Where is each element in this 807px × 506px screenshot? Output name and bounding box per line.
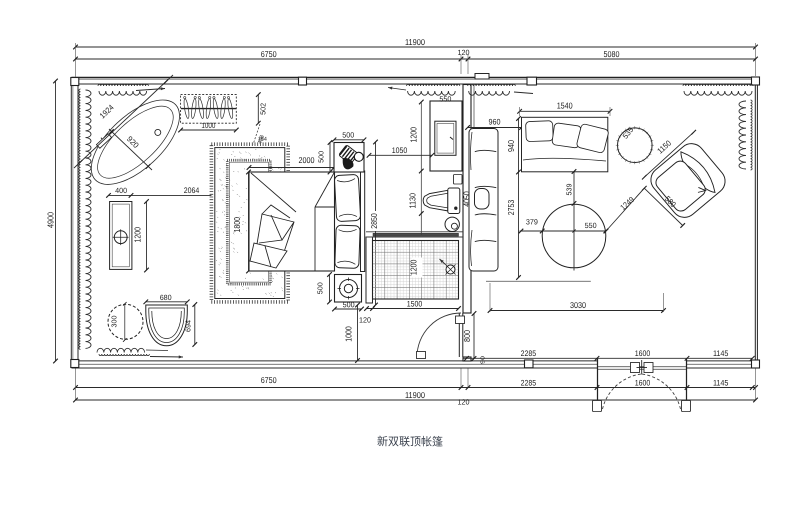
svg-text:90: 90 — [480, 356, 486, 364]
svg-text:1500: 1500 — [407, 299, 423, 308]
svg-text:1200: 1200 — [410, 126, 419, 142]
svg-text:1200: 1200 — [133, 226, 142, 242]
svg-text:1145: 1145 — [713, 349, 729, 358]
svg-text:11900: 11900 — [405, 37, 425, 47]
svg-text:1540: 1540 — [557, 100, 573, 110]
svg-text:379: 379 — [526, 217, 538, 226]
svg-text:300: 300 — [109, 316, 118, 328]
svg-text:6750: 6750 — [261, 375, 277, 385]
svg-text:550: 550 — [585, 221, 597, 230]
svg-text:1145: 1145 — [713, 378, 729, 387]
svg-text:11900: 11900 — [405, 390, 425, 400]
svg-text:694: 694 — [184, 320, 193, 332]
svg-text:1600: 1600 — [635, 378, 651, 387]
svg-text:680: 680 — [160, 293, 172, 302]
svg-text:2285: 2285 — [521, 378, 537, 387]
svg-text:502: 502 — [259, 103, 268, 115]
svg-text:400: 400 — [115, 186, 127, 195]
svg-text:1000: 1000 — [201, 121, 215, 130]
svg-text:500: 500 — [317, 151, 326, 163]
svg-text:4900: 4900 — [46, 212, 56, 228]
svg-text:940: 940 — [507, 140, 516, 152]
svg-text:1000: 1000 — [345, 326, 354, 342]
svg-text:新双联顶帐篷: 新双联顶帐篷 — [377, 434, 444, 448]
svg-text:3030: 3030 — [570, 300, 586, 310]
svg-text:800: 800 — [463, 330, 472, 342]
svg-text:1600: 1600 — [635, 349, 651, 358]
svg-text:500: 500 — [316, 282, 325, 294]
svg-text:2000: 2000 — [298, 155, 314, 165]
svg-text:164: 164 — [258, 137, 267, 143]
svg-text:2753: 2753 — [507, 199, 516, 215]
svg-text:4050: 4050 — [462, 191, 471, 207]
svg-text:500: 500 — [343, 300, 355, 309]
svg-text:5080: 5080 — [603, 49, 619, 59]
svg-text:1200: 1200 — [410, 259, 419, 275]
svg-text:120: 120 — [359, 315, 371, 324]
svg-text:120: 120 — [457, 397, 469, 406]
svg-text:2064: 2064 — [184, 186, 200, 195]
svg-text:120: 120 — [457, 48, 469, 57]
svg-text:1800: 1800 — [233, 217, 242, 233]
svg-text:1050: 1050 — [392, 146, 408, 155]
svg-text:2285: 2285 — [521, 349, 537, 358]
svg-text:1130: 1130 — [409, 192, 418, 208]
svg-text:500: 500 — [342, 130, 354, 139]
svg-text:6750: 6750 — [261, 49, 277, 59]
svg-text:550: 550 — [439, 94, 451, 103]
svg-text:539: 539 — [565, 184, 574, 196]
svg-text:960: 960 — [488, 117, 501, 126]
svg-text:2850: 2850 — [370, 213, 379, 229]
